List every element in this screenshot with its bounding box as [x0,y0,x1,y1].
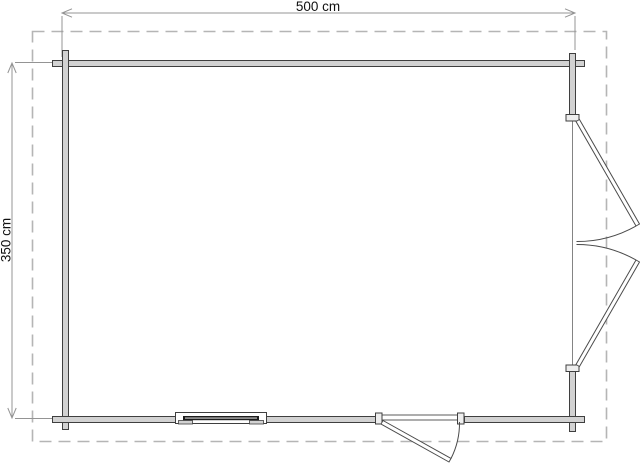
walls [53,51,585,432]
double-door-right [566,115,640,372]
roof-overhang-dashed-outline [33,32,607,442]
window-sill-right [250,421,264,425]
window-sill-left [179,421,193,425]
door-frame [382,415,458,420]
wall-top [53,61,585,67]
dimension-width-label: 500 cm [296,0,340,14]
single-door-bottom [376,413,465,462]
door-jamb-right [458,413,465,424]
wall-bottom-middle-segment [267,417,377,423]
dimension-height-label: 350 cm [0,218,14,262]
floor-plan-page: 500 cm 350 cm [0,0,640,463]
wall-right-upper [570,54,576,115]
floor-plan-canvas: 500 cm 350 cm [0,0,640,463]
window-glazing-line [185,418,257,419]
door-jamb-top [566,115,579,122]
window-bottom [176,413,267,425]
dimension-width [62,9,575,57]
wall-bottom-right-segment [465,417,585,423]
wall-bottom-left-segment [53,417,176,423]
door-swing-arc [451,422,460,459]
door-leaf-upper [576,120,640,227]
door-jamb-bottom [566,365,579,372]
wall-left [63,51,69,430]
door-jamb-left [376,413,383,424]
door-leaf-lower [576,260,640,367]
